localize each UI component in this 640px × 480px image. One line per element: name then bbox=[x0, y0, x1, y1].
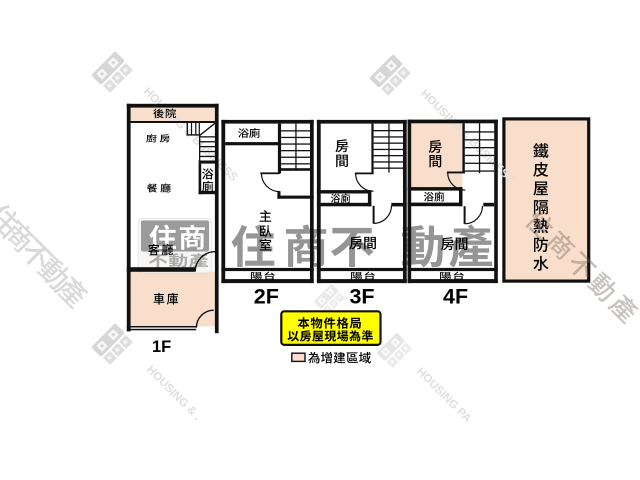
svg-text:2F: 2F bbox=[254, 285, 279, 309]
svg-text:3F: 3F bbox=[349, 285, 374, 309]
svg-text:4F: 4F bbox=[443, 285, 468, 309]
svg-text:1F: 1F bbox=[152, 338, 171, 356]
